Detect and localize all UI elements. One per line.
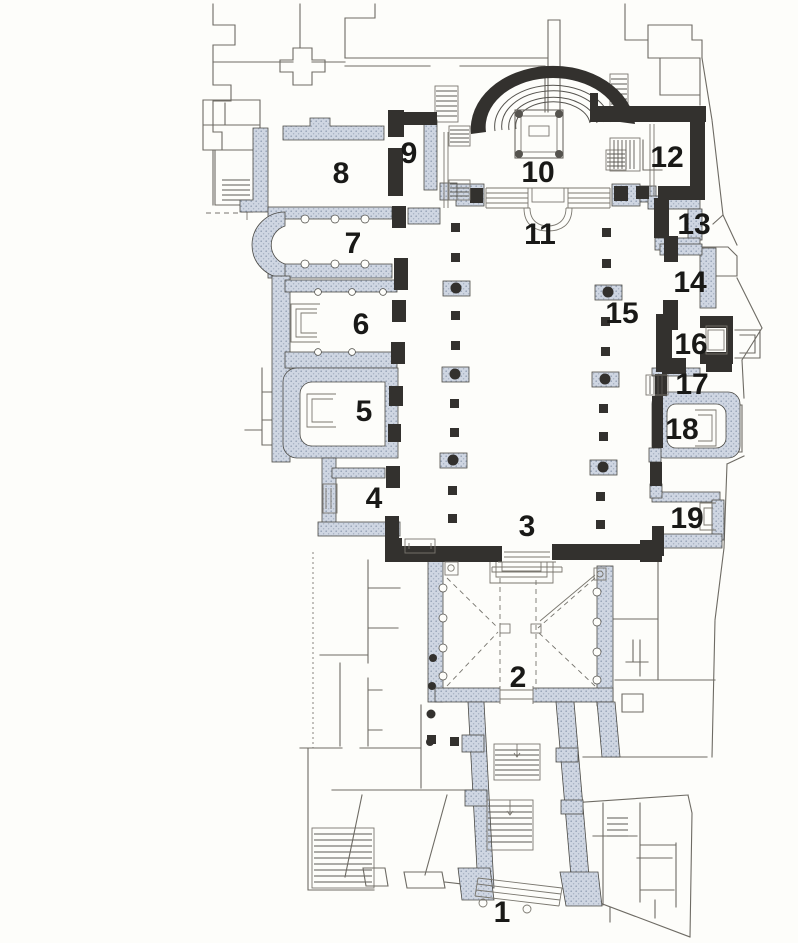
room-label-17: 17: [675, 368, 708, 401]
room-label-10: 10: [521, 156, 554, 189]
floor-plan-canvas: 12345678910111213141516171819: [0, 0, 798, 943]
room-label-12: 12: [650, 141, 683, 174]
room-label-7: 7: [345, 227, 362, 260]
room-label-5: 5: [356, 395, 373, 428]
room-label-6: 6: [353, 308, 370, 341]
room-label-3: 3: [519, 510, 536, 543]
room-label-18: 18: [665, 413, 698, 446]
room-label-19: 19: [670, 502, 703, 535]
nave-colonnades: [440, 223, 622, 529]
room-label-13: 13: [677, 208, 710, 241]
room-label-2: 2: [510, 661, 527, 694]
room-label-4: 4: [366, 482, 383, 515]
floor-plan-page: 12345678910111213141516171819: [0, 0, 798, 943]
room-label-14: 14: [673, 266, 707, 299]
room-label-11: 11: [524, 218, 556, 251]
room-label-8: 8: [333, 157, 350, 190]
room-label-15: 15: [605, 297, 638, 330]
room-label-16: 16: [674, 328, 707, 361]
room-label-1: 1: [494, 896, 511, 929]
room-label-9: 9: [401, 137, 418, 170]
